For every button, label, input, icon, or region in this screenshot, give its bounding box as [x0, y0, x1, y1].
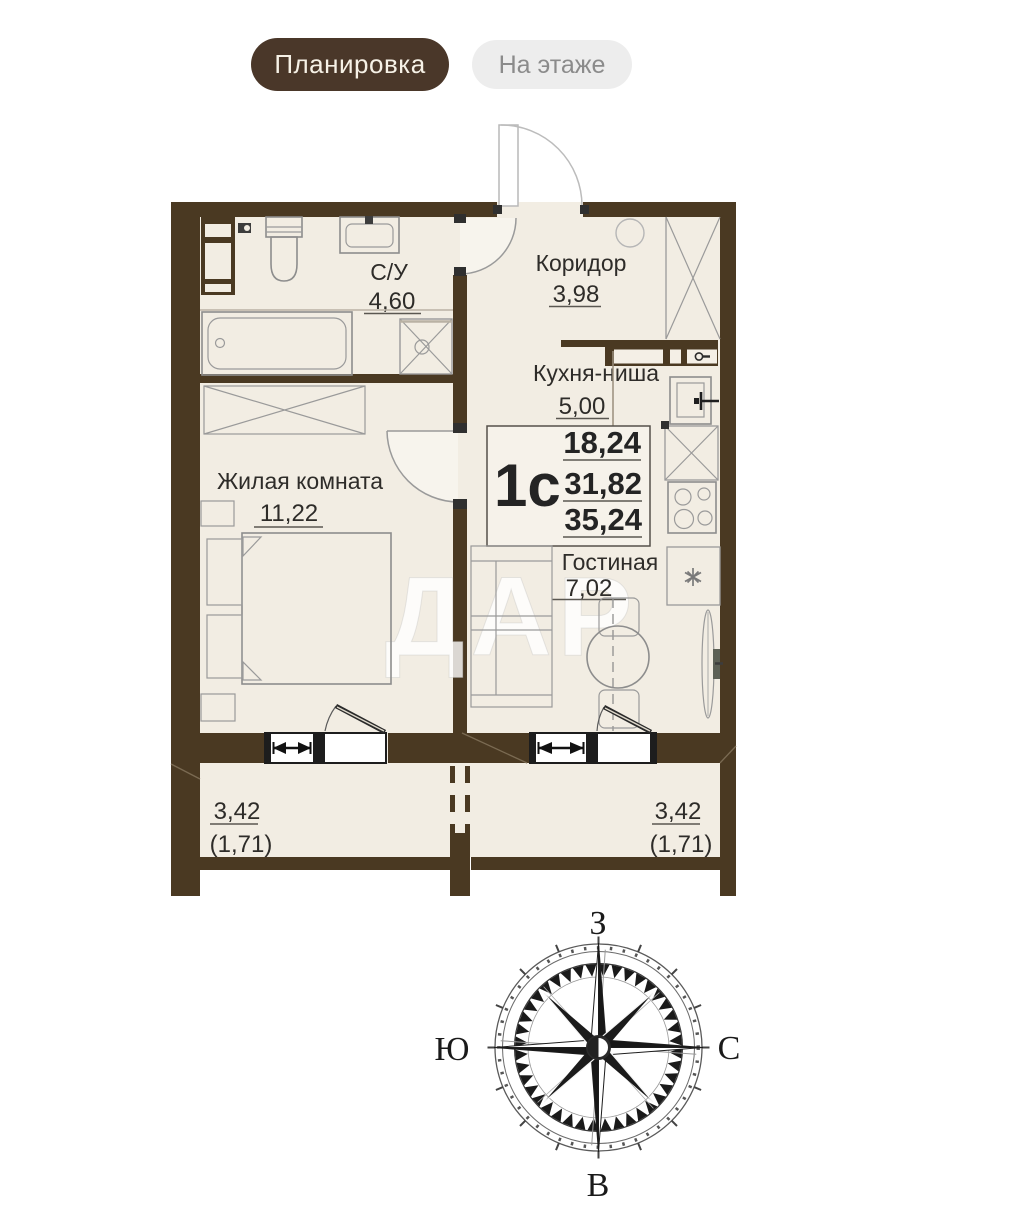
svg-text:В: В: [587, 1167, 610, 1204]
svg-text:31,82: 31,82: [564, 466, 642, 501]
svg-text:3,98: 3,98: [553, 281, 600, 308]
svg-text:4,60: 4,60: [369, 288, 416, 315]
svg-text:(1,71): (1,71): [210, 831, 273, 858]
svg-text:5,00: 5,00: [559, 393, 606, 420]
svg-text:11,22: 11,22: [260, 500, 318, 527]
svg-text:С/У: С/У: [370, 259, 408, 285]
svg-text:Ю: Ю: [435, 1031, 470, 1068]
svg-text:3,42: 3,42: [655, 798, 702, 825]
svg-text:С: С: [718, 1030, 741, 1067]
svg-text:З: З: [589, 905, 606, 942]
svg-text:18,24: 18,24: [563, 425, 641, 460]
svg-text:На этаже: На этаже: [499, 51, 606, 79]
svg-text:(1,71): (1,71): [650, 831, 713, 858]
svg-text:3,42: 3,42: [214, 798, 261, 825]
svg-text:Планировка: Планировка: [274, 49, 425, 79]
svg-text:Гостиная: Гостиная: [562, 549, 659, 575]
svg-text:1с: 1с: [494, 452, 561, 519]
svg-text:35,24: 35,24: [564, 502, 642, 537]
svg-text:Кухня-ниша: Кухня-ниша: [533, 360, 659, 386]
svg-text:Коридор: Коридор: [536, 250, 627, 276]
svg-text:Жилая комната: Жилая комната: [217, 468, 383, 494]
